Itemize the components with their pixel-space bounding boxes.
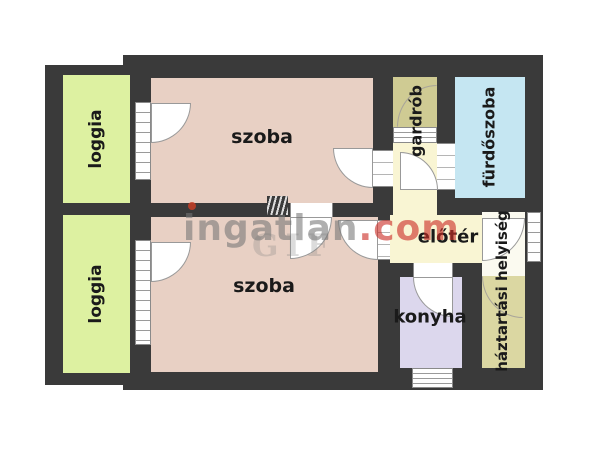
balcony-door-window-top <box>135 102 151 180</box>
label-szoba-top: szoba <box>231 126 293 148</box>
window-right-wall <box>527 212 541 262</box>
door-opening-konyha <box>413 263 453 277</box>
door-opening-szoba-divider <box>290 203 333 217</box>
door-opening-szoba-top <box>373 150 393 187</box>
shaft-hatch <box>267 196 288 215</box>
window-konyha <box>412 368 453 388</box>
label-furdoszoba: fürdőszoba <box>480 87 499 188</box>
door-opening-furdoszoba <box>437 143 455 190</box>
label-szoba-bottom: szoba <box>233 275 295 297</box>
door-opening-szoba-bottom <box>378 220 390 260</box>
label-loggia-bottom: loggia <box>86 264 106 323</box>
balcony-door-window-bottom <box>135 240 151 345</box>
floor-plan: loggia loggia szoba szoba gardrób fürdős… <box>0 0 600 450</box>
label-haztartasi: háztartási helyiség <box>493 210 511 372</box>
label-loggia-top: loggia <box>86 109 106 168</box>
label-konyha: konyha <box>393 307 466 328</box>
watermark-i-dot-icon <box>188 202 196 210</box>
label-gardrob: gardrób <box>407 85 426 157</box>
watermark-ghost-text: GIF <box>252 228 336 264</box>
label-eloter: előtér <box>418 227 478 248</box>
